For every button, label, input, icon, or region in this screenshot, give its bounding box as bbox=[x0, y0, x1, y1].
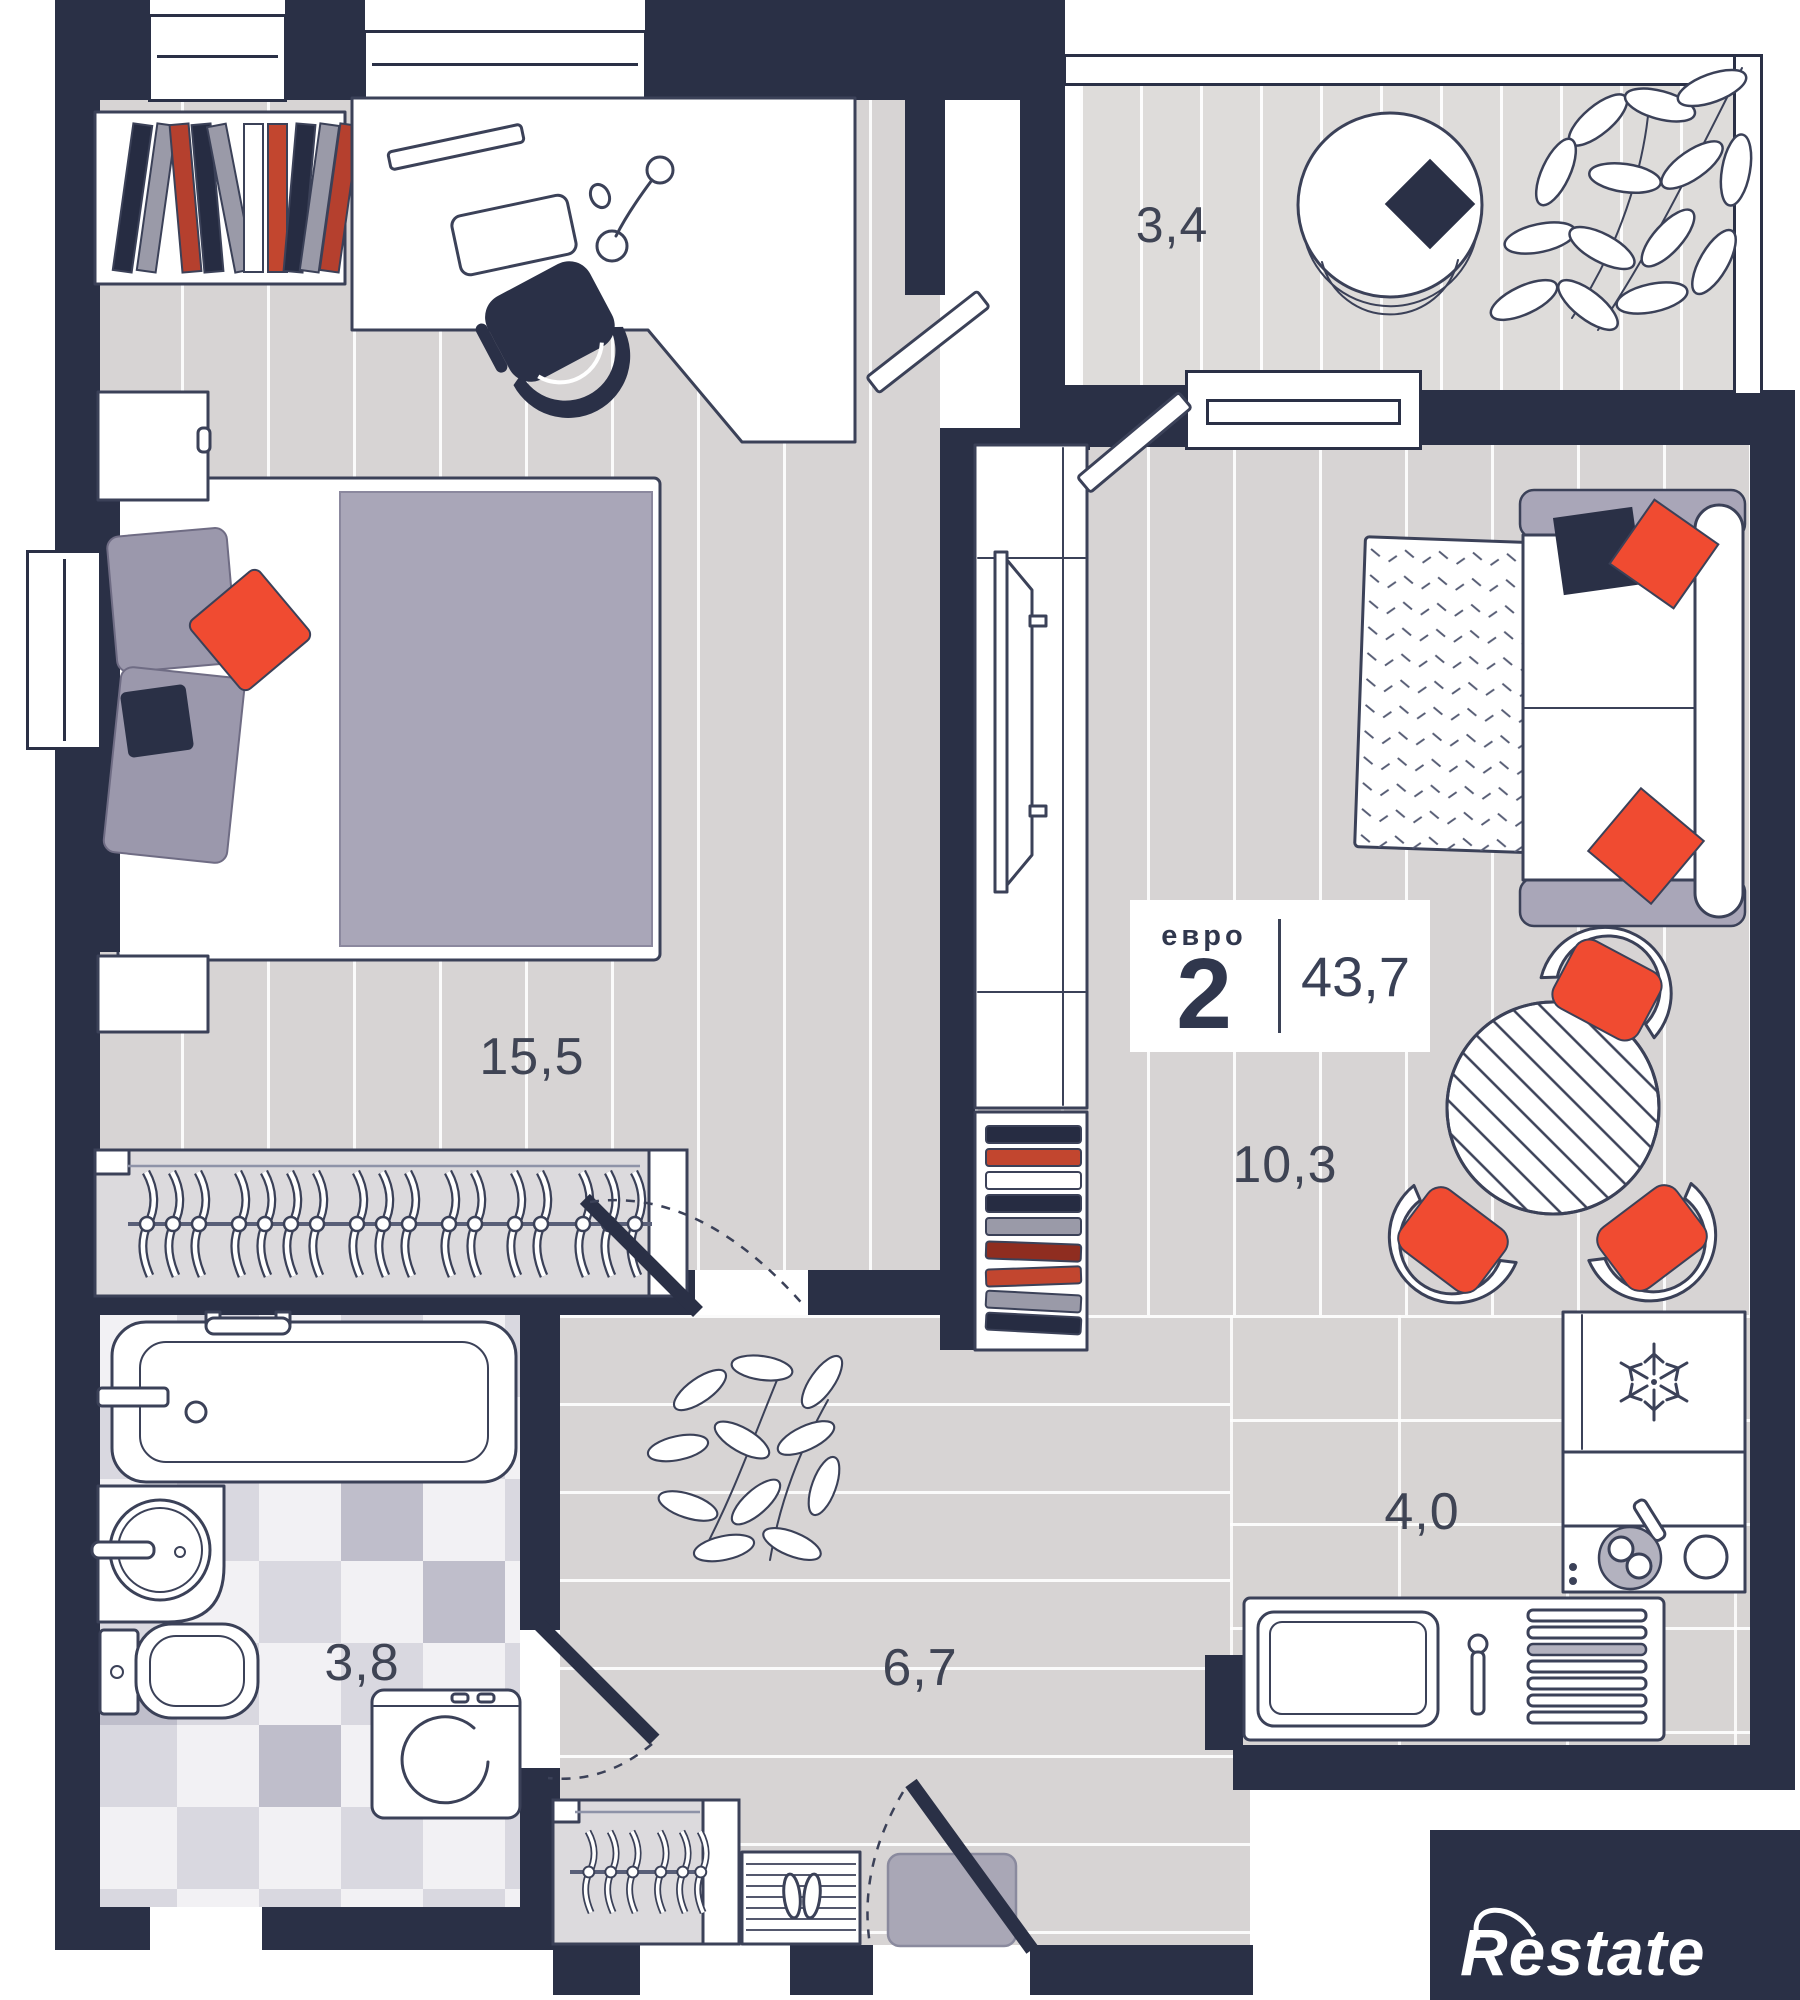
washing-machine bbox=[372, 1690, 520, 1818]
drainboard bbox=[1528, 1610, 1646, 1723]
living-bookshelf bbox=[975, 1112, 1087, 1350]
plan-total-area: 43,7 bbox=[1281, 944, 1430, 1009]
plan-type-badge: евро 2 43,7 bbox=[1130, 900, 1430, 1052]
bathroom-door bbox=[535, 1620, 659, 1779]
plan-type-number: 2 bbox=[1130, 953, 1278, 1035]
brand-watermark: Restate bbox=[1448, 1896, 1800, 2000]
hallway-plant bbox=[646, 1350, 850, 1566]
faucet-icon bbox=[92, 1542, 154, 1558]
area-label-bathroom: 3,8 bbox=[324, 1633, 399, 1693]
papasan-chair bbox=[1298, 113, 1482, 314]
toilet bbox=[100, 1624, 258, 1718]
bathroom-sink bbox=[92, 1486, 224, 1622]
fridge bbox=[1563, 1312, 1745, 1452]
balcony-plant bbox=[1485, 63, 1756, 339]
interior-door-leaf bbox=[867, 291, 990, 393]
sofa bbox=[1520, 490, 1745, 926]
area-label-hallway: 6,7 bbox=[882, 1638, 957, 1698]
area-label-balcony: 3,4 bbox=[1136, 196, 1209, 254]
hallway-wardrobe bbox=[553, 1800, 739, 1944]
shoe-rack bbox=[742, 1852, 860, 1944]
burner-icon bbox=[1685, 1536, 1727, 1578]
bed bbox=[100, 478, 660, 960]
tub-faucet-icon bbox=[98, 1388, 168, 1406]
navy-pillow bbox=[120, 684, 195, 759]
bedroom-wardrobe bbox=[95, 1150, 687, 1296]
brand-watermark-text: Restate bbox=[1460, 1914, 1705, 1990]
furniture-layer bbox=[0, 0, 1800, 2000]
faucet-icon bbox=[1469, 1635, 1487, 1653]
duvet bbox=[340, 492, 652, 946]
bookshelf bbox=[95, 112, 359, 284]
floorplan-canvas: 3,4 15,5 10,3 4,0 3,8 6,7 евро 2 43,7 Re… bbox=[0, 0, 1800, 2000]
grab-bar bbox=[206, 1318, 290, 1334]
area-label-living-room: 10,3 bbox=[1232, 1135, 1337, 1195]
balcony-door-leaf bbox=[1077, 392, 1191, 492]
tv-unit bbox=[975, 445, 1087, 1108]
nightstand bbox=[98, 392, 210, 500]
bathtub bbox=[98, 1312, 516, 1482]
area-label-kitchen: 4,0 bbox=[1384, 1482, 1459, 1542]
kitchen-sink bbox=[1244, 1598, 1664, 1740]
area-label-bedroom: 15,5 bbox=[479, 1027, 584, 1087]
nightstand bbox=[98, 956, 208, 1032]
